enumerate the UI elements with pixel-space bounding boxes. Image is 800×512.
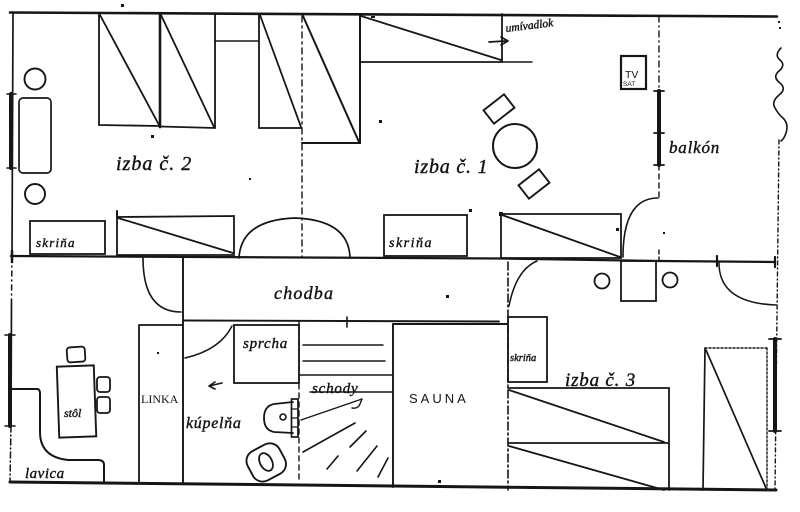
svg-text:SAT: SAT	[623, 81, 635, 88]
svg-text:izba č. 1: izba č. 1	[414, 156, 488, 178]
svg-text:TV: TV	[625, 69, 638, 81]
svg-text:skriňa: skriňa	[389, 236, 433, 251]
svg-text:sprcha: sprcha	[243, 336, 288, 352]
svg-text:umívadlok: umívadlok	[505, 17, 555, 35]
svg-text:SAUNA: SAUNA	[409, 391, 469, 406]
svg-text:izba č. 2: izba č. 2	[116, 153, 192, 175]
svg-text:skriňa: skriňa	[36, 235, 76, 250]
svg-text:schody: schody	[312, 381, 358, 397]
svg-text:kúpelňa: kúpelňa	[186, 415, 242, 432]
svg-text:chodba: chodba	[274, 283, 334, 303]
svg-text:balkón: balkón	[669, 138, 720, 157]
svg-text:lavica: lavica	[25, 466, 65, 482]
svg-text:stôl: stôl	[64, 406, 82, 420]
svg-text:LINKA: LINKA	[141, 392, 179, 406]
svg-text:skriňa: skriňa	[510, 353, 536, 364]
